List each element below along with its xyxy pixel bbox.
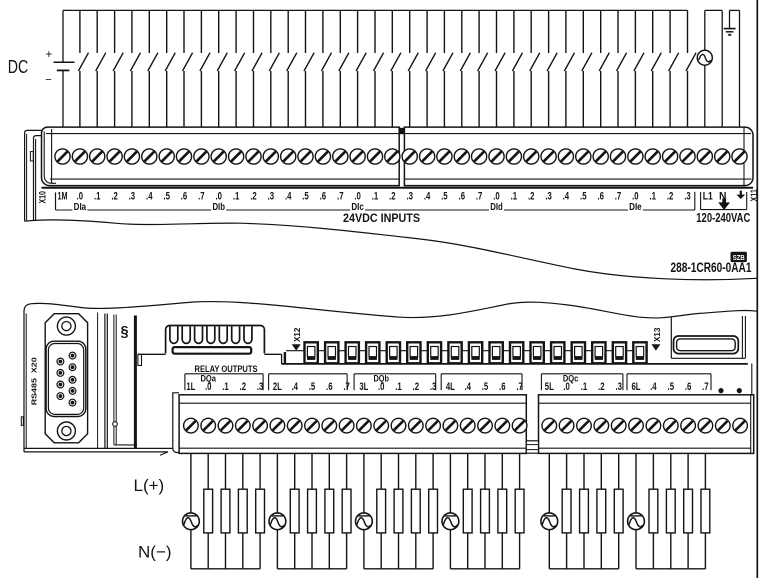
svg-text:DC: DC	[8, 56, 29, 77]
svg-text:.5: .5	[668, 381, 675, 393]
svg-text:.7: .7	[343, 381, 350, 393]
svg-text:.3: .3	[545, 190, 552, 202]
svg-text:.2: .2	[250, 190, 257, 202]
svg-text:.0: .0	[563, 381, 570, 393]
svg-text:.3: .3	[268, 190, 275, 202]
svg-text:+: +	[45, 49, 52, 61]
svg-text:1M: 1M	[58, 190, 68, 202]
svg-text:.0: .0	[493, 190, 500, 202]
svg-text:.2: .2	[240, 381, 247, 393]
svg-text:.6: .6	[320, 190, 327, 202]
svg-text:.7: .7	[198, 190, 205, 202]
svg-text:3L: 3L	[359, 381, 368, 393]
svg-text:.1: .1	[222, 381, 229, 393]
svg-text:.6: .6	[597, 190, 604, 202]
svg-text:N(−): N(−)	[138, 543, 172, 562]
svg-text:.4: .4	[424, 190, 431, 202]
svg-text:.5: .5	[482, 381, 489, 393]
svg-text:−: −	[45, 75, 52, 87]
svg-text:.1: .1	[649, 190, 656, 202]
svg-text:288-1CR60-0AA1: 288-1CR60-0AA1	[671, 260, 752, 275]
svg-text:§: §	[120, 324, 128, 340]
svg-text:DId: DId	[490, 202, 503, 213]
svg-text:.1: .1	[395, 381, 402, 393]
svg-text:L1: L1	[703, 190, 713, 202]
svg-text:.7: .7	[702, 381, 709, 393]
svg-text:4L: 4L	[446, 381, 455, 393]
svg-text:.0: .0	[632, 190, 639, 202]
svg-text:1L: 1L	[186, 381, 195, 393]
svg-text:.2: .2	[413, 381, 420, 393]
svg-text:.0: .0	[205, 381, 212, 393]
svg-text:.5: .5	[302, 190, 309, 202]
svg-text:.0: .0	[215, 190, 222, 202]
svg-text:.7: .7	[476, 190, 483, 202]
svg-text:.6: .6	[326, 381, 333, 393]
svg-text:.2: .2	[528, 190, 535, 202]
svg-text:.1: .1	[581, 381, 588, 393]
svg-text:RS485 X20: RS485 X20	[30, 357, 39, 405]
svg-text:.4: .4	[291, 381, 298, 393]
svg-text:.2: .2	[111, 190, 118, 202]
svg-text:.6: .6	[459, 190, 466, 202]
svg-text:.3: .3	[430, 381, 437, 393]
svg-text:.6: .6	[499, 381, 506, 393]
svg-text:.1: .1	[233, 190, 240, 202]
svg-text:.3: .3	[406, 190, 413, 202]
svg-text:.0: .0	[378, 381, 385, 393]
svg-text:DIb: DIb	[212, 202, 225, 213]
svg-text:.1: .1	[94, 190, 101, 202]
svg-text:.6: .6	[685, 381, 692, 393]
svg-text:DIe: DIe	[629, 202, 642, 213]
svg-text:.2: .2	[389, 190, 396, 202]
svg-text:X13: X13	[652, 327, 662, 342]
svg-text:.4: .4	[563, 190, 570, 202]
svg-text:.5: .5	[309, 381, 316, 393]
svg-text:X12: X12	[292, 327, 302, 342]
svg-text:.4: .4	[650, 381, 657, 393]
svg-text:.2: .2	[598, 381, 605, 393]
svg-text:.1: .1	[511, 190, 518, 202]
svg-text:.6: .6	[181, 190, 188, 202]
svg-text:.4: .4	[285, 190, 292, 202]
svg-text:.5: .5	[441, 190, 448, 202]
svg-text:.4: .4	[464, 381, 471, 393]
svg-text:.0: .0	[354, 190, 361, 202]
svg-text:.2: .2	[667, 190, 674, 202]
svg-text:.1: .1	[372, 190, 379, 202]
svg-text:.3: .3	[684, 190, 691, 202]
svg-text:6L: 6L	[632, 381, 641, 393]
svg-text:.7: .7	[516, 381, 523, 393]
svg-text:.0: .0	[77, 190, 84, 202]
svg-text:.3: .3	[615, 381, 622, 393]
svg-text:24VDC INPUTS: 24VDC INPUTS	[343, 213, 420, 225]
svg-text:.7: .7	[615, 190, 622, 202]
svg-text:.3: .3	[129, 190, 136, 202]
svg-text:2L: 2L	[273, 381, 282, 393]
svg-text:L(+): L(+)	[134, 476, 165, 495]
svg-text:DIa: DIa	[74, 202, 87, 213]
svg-text:X10: X10	[37, 191, 47, 204]
svg-text:.5: .5	[163, 190, 170, 202]
svg-text:120-240VAC: 120-240VAC	[696, 210, 750, 225]
svg-text:.7: .7	[337, 190, 344, 202]
svg-text:.5: .5	[580, 190, 587, 202]
svg-text:.3: .3	[257, 381, 264, 393]
svg-text:5L: 5L	[545, 381, 554, 393]
svg-text:.4: .4	[146, 190, 153, 202]
